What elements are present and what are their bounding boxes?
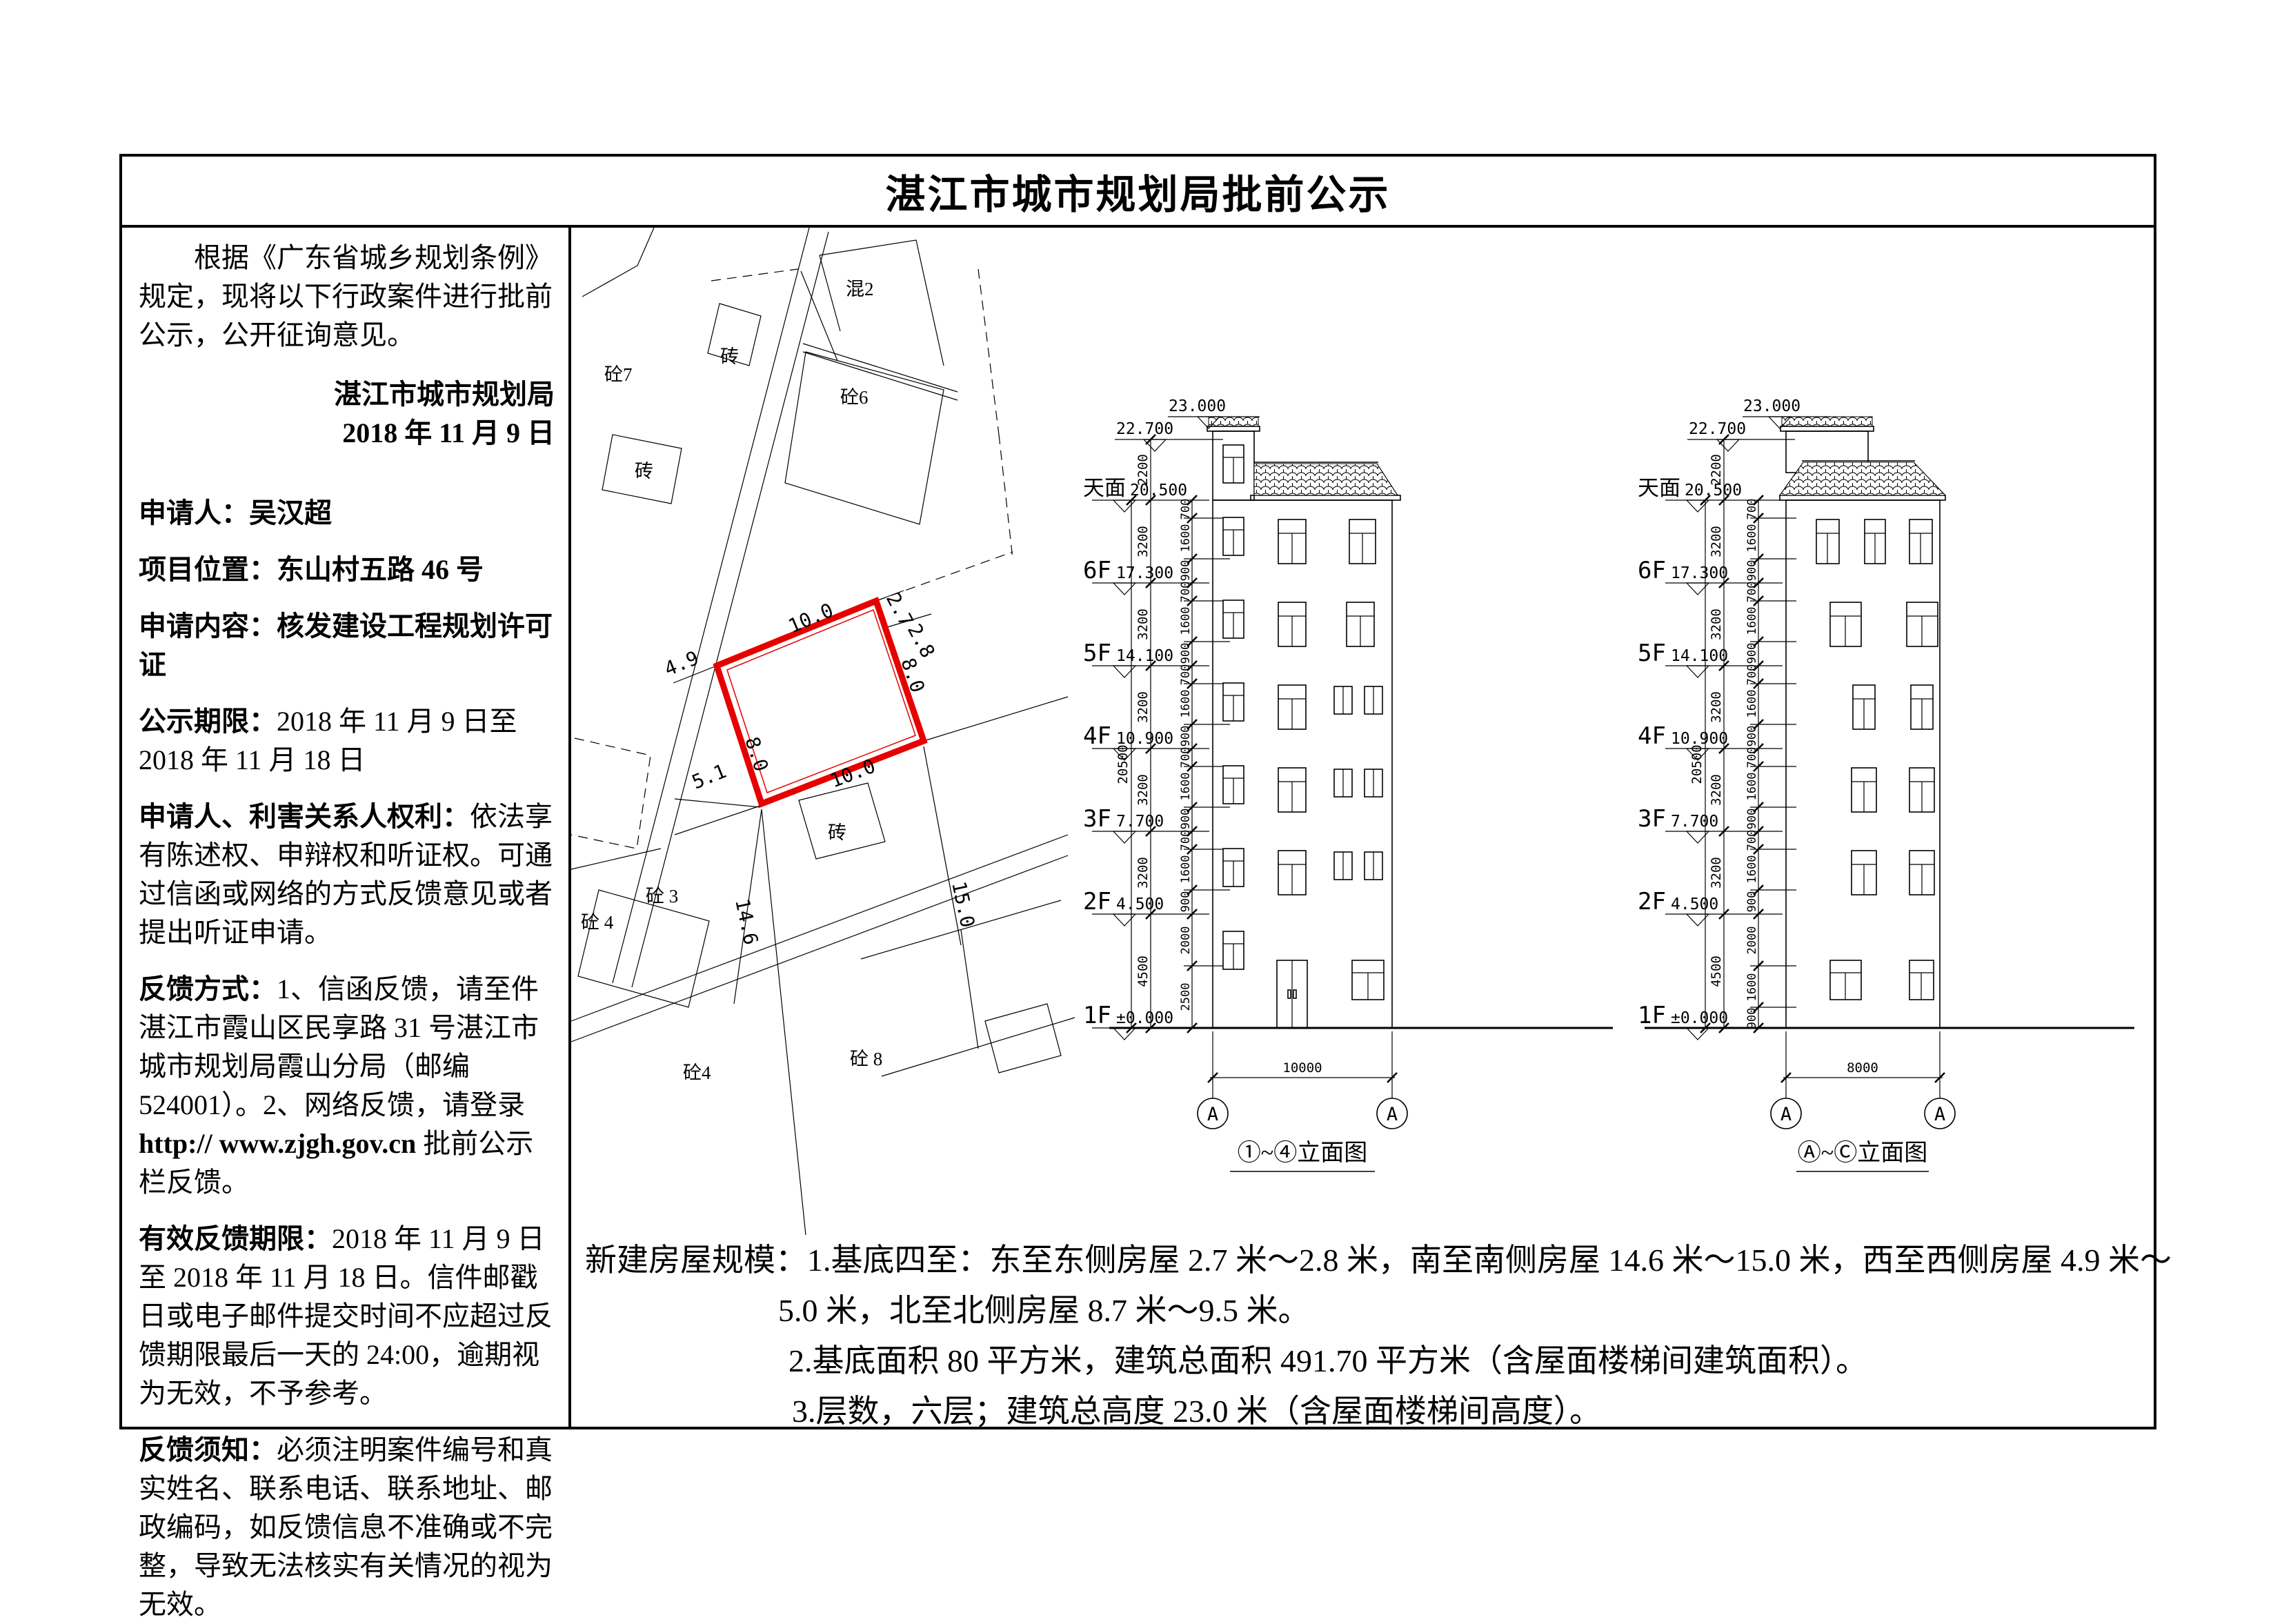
floor-dim: 3200: [1709, 774, 1724, 806]
level-name: 2F: [1083, 888, 1111, 915]
period-label: 公示期限：: [139, 706, 277, 737]
roof-small-mark: 23.000: [1743, 397, 1800, 415]
windows-left-elevation: [1223, 445, 1384, 1028]
drawing-area: 10.0 10.0 8.0 8.0 2.7 2.8 4.9 5.1 14.6 1…: [571, 228, 2154, 1427]
window-dim: 900: [1745, 726, 1759, 747]
document-frame: 湛江市城市规划局批前公示 根据《广东省城乡规划条例》规定，现将以下行政案件进行批…: [119, 154, 2156, 1429]
window-dim: 900: [1179, 809, 1193, 830]
content-row: 申请内容：核发建设工程规划许可证: [139, 607, 555, 684]
window-dim: 1600: [1179, 855, 1193, 884]
window-dim: 900: [1179, 560, 1193, 582]
site-plan-drawing: 10.0 10.0 8.0 8.0 2.7 2.8 4.9 5.1 14.6 1…: [571, 228, 1082, 1235]
setback-south-2: 15.0: [947, 880, 979, 930]
setback-west-1: 4.9: [661, 646, 702, 681]
window-dim: 700: [1179, 664, 1193, 686]
org-date: 2018 年 11 月 9 日: [342, 417, 555, 448]
feedback-url: http:// www.zjgh.gov.cn: [139, 1128, 416, 1159]
note-line-2: 5.0 米，北至北侧房屋 8.7 米～9.5 米。: [778, 1285, 2154, 1336]
elevation-caption: Ⓐ~Ⓒ立面图: [1798, 1140, 1927, 1166]
window-dim: 700: [1179, 747, 1193, 769]
window-dimension-chain-left: 700 1600 900 700 1600 900 700 1600 900 7…: [1179, 495, 1230, 1033]
width-dim-value: 10000: [1282, 1060, 1322, 1076]
level-name: 6F: [1083, 557, 1111, 584]
roof-small-mark: 23.000: [1169, 397, 1226, 415]
floor-dim: 3200: [1709, 857, 1724, 889]
public-notice-page: { "title": "湛江市城市规划局批前公示", "sidebar": { …: [0, 0, 2282, 1614]
floor-dim: 3200: [1709, 691, 1724, 723]
level-name: 4F: [1638, 722, 1666, 750]
window-dim: 1600: [1179, 773, 1193, 801]
org-name: 湛江市城市规划局: [334, 379, 555, 410]
level-name: 5F: [1638, 640, 1666, 667]
feedback-label: 反馈方式：: [139, 973, 277, 1004]
window-dim: 700: [1179, 499, 1193, 520]
parcel-label: 砼 4: [581, 912, 614, 933]
level-elevation: 14.100: [1116, 647, 1173, 665]
window-dim: 700: [1745, 499, 1759, 520]
window-dim: 900: [1745, 560, 1759, 582]
level-name: 天面: [1083, 476, 1126, 500]
notice-sidebar: 根据《广东省城乡规划条例》规定，现将以下行政案件进行批前公示，公开征询意见。 湛…: [122, 228, 571, 1427]
location-row: 项目位置：东山村五路 46 号: [139, 551, 555, 589]
floor-dim: 3200: [1135, 857, 1151, 889]
note-line-4: 3.层数，六层；建筑总高度 23.0 米（含屋面楼梯间高度）。: [792, 1386, 2154, 1436]
caption-left-elevation: ①~④立面图: [1230, 1140, 1375, 1171]
floor-dim: 3200: [1135, 526, 1151, 557]
width-dimension-right-elevation: 8000 A A: [1771, 1031, 1955, 1129]
window-dim: 1600: [1179, 607, 1193, 635]
floor-dim: 3200: [1135, 774, 1151, 806]
window-dimension-chain-right: 700 1600 900 700 1600 900 700 1600 900 7…: [1745, 495, 1796, 1033]
level-name: 6F: [1638, 557, 1666, 584]
rights-label: 申请人、利害关系人权利：: [139, 801, 470, 832]
window-dim: 2000: [1745, 927, 1759, 955]
floor-dim: 2200: [1135, 454, 1151, 486]
axis-bubble-label: A: [1934, 1104, 1945, 1125]
parcel-label: 砼 8: [850, 1049, 882, 1069]
valid-row: 有效反馈期限：2018 年 11 月 9 日至 2018 年 11 月 18 日…: [139, 1220, 555, 1413]
intro-paragraph: 根据《广东省城乡规划条例》规定，现将以下行政案件进行批前公示，公开征询意见。: [139, 239, 555, 355]
overall-dim: 20500: [1115, 744, 1131, 784]
applicant-label: 申请人：: [139, 497, 249, 528]
floor-dim: 3200: [1709, 608, 1724, 640]
caption-right-elevation: Ⓐ~Ⓒ立面图: [1796, 1140, 1929, 1171]
level-elevation: 17.300: [1116, 564, 1173, 582]
window-dim: 900: [1179, 643, 1193, 664]
width-dim-value: 8000: [1847, 1060, 1878, 1076]
axis-bubble-label: A: [1207, 1104, 1218, 1125]
floor-dim: 4500: [1709, 955, 1724, 987]
level-elevation: 7.700: [1116, 813, 1164, 831]
level-name: 2F: [1638, 888, 1666, 915]
level-name: 3F: [1638, 805, 1666, 833]
note-line-1: 新建房屋规模：1.基底四至：东至东侧房屋 2.7 米～2.8 米，南至南侧房屋 …: [585, 1235, 2154, 1285]
notice-row: 反馈须知：必须注明案件编号和真实姓名、联系电话、联系地址、邮政编码，如反馈信息不…: [139, 1431, 555, 1624]
level-name: 1F: [1638, 1002, 1666, 1029]
title-bar: 湛江市城市规划局批前公示: [122, 157, 2154, 228]
roof-main-mark: 22.700: [1689, 420, 1746, 438]
period-row: 公示期限：2018 年 11 月 9 日至 2018 年 11 月 18 日: [139, 702, 555, 780]
window-dim: 1600: [1745, 607, 1759, 635]
level-name: 天面: [1638, 476, 1680, 500]
elevation-1-4-drawing: 天面 20.500 6F 17.300 5F 14.100 4F 10.900 …: [1082, 228, 1624, 1235]
window-dim: 700: [1745, 747, 1759, 769]
overall-dim: 20500: [1689, 744, 1705, 784]
setback-south-1: 14.6: [731, 897, 762, 947]
window-dim: 1600: [1745, 973, 1759, 1002]
window-dim: 900: [1745, 1008, 1759, 1029]
org-block: 湛江市城市规划局 2018 年 11 月 9 日: [139, 375, 555, 453]
parcel-label: 砼 3: [646, 886, 678, 907]
window-dim: 1600: [1745, 524, 1759, 553]
parcel-label: 砖: [720, 346, 739, 367]
window-dim: 2500: [1179, 983, 1193, 1011]
window-dim: 700: [1179, 830, 1193, 851]
elevation-caption: ①~④立面图: [1238, 1140, 1367, 1166]
roof-main-mark: 22.700: [1116, 420, 1173, 438]
window-dim: 700: [1745, 664, 1759, 686]
parcel-label: 砖: [635, 461, 653, 482]
parcel-label: 砖: [828, 822, 846, 843]
page-title: 湛江市城市规划局批前公示: [885, 162, 1390, 220]
window-dim: 2000: [1179, 927, 1193, 955]
note-line-3: 2.基底面积 80 平方米，建筑总面积 491.70 平方米（含屋面楼梯间建筑面…: [788, 1336, 2154, 1386]
setback-east-2: 2.8: [903, 620, 940, 662]
window-dim: 700: [1179, 582, 1193, 603]
parcel-label: 砼7: [604, 364, 633, 385]
rights-row: 申请人、利害关系人权利：依法享有陈述权、申辩权和听证权。可通过信函或网络的方式反…: [139, 798, 555, 952]
window-dim: 700: [1745, 582, 1759, 603]
valid-label: 有效反馈期限：: [139, 1223, 332, 1254]
feedback-row: 反馈方式：1、信函反馈，请至件湛江市霞山区民享路 31 号湛江市城市规划局霞山分…: [139, 970, 555, 1202]
parcel-label: 砼4: [683, 1062, 711, 1083]
floor-dim: 2200: [1709, 454, 1724, 486]
axis-bubble-label: A: [1387, 1104, 1398, 1125]
location-value: 东山村五路 46 号: [277, 554, 484, 585]
elevation-a-c-drawing: 天面 20.500 6F 17.300 5F 14.100 4F 10.900 …: [1624, 228, 2159, 1235]
level-name: 4F: [1083, 722, 1111, 750]
level-elevation: ±0.000: [1671, 1009, 1728, 1027]
axis-bubble-label: A: [1780, 1104, 1792, 1125]
level-elevation: ±0.000: [1116, 1009, 1173, 1027]
level-elevation: 17.300: [1671, 564, 1728, 582]
window-dim: 1600: [1745, 855, 1759, 884]
setback-west-2: 5.1: [688, 760, 729, 794]
building-scale-notes: 新建房屋规模：1.基底四至：东至东侧房屋 2.7 米～2.8 米，南至南侧房屋 …: [571, 1235, 2154, 1436]
parcel-label: 砼6: [840, 387, 869, 408]
windows-right-elevation: [1816, 519, 1938, 1000]
window-dim: 900: [1745, 891, 1759, 913]
width-dimension-left-elevation: 10000 A A: [1198, 1031, 1407, 1129]
location-label: 项目位置：: [139, 554, 277, 585]
level-elevation: 4.500: [1671, 895, 1718, 913]
level-elevation: 14.100: [1671, 647, 1728, 665]
level-name: 3F: [1083, 805, 1111, 833]
window-dim: 900: [1745, 809, 1759, 830]
notice-label: 反馈须知：: [139, 1434, 277, 1465]
floor-dim: 3200: [1135, 608, 1151, 640]
applicant-value: 吴汉超: [249, 497, 332, 528]
floor-dim: 4500: [1135, 955, 1151, 987]
window-dim: 1600: [1179, 690, 1193, 718]
floor-dim: 3200: [1135, 691, 1151, 723]
level-elevation: 4.500: [1116, 895, 1164, 913]
level-markers-right-elevation: 天面 20.500 6F 17.300 5F 14.100 4F 10.900 …: [1638, 476, 1783, 1040]
parcel-label: 混2: [846, 279, 874, 299]
window-dim: 900: [1179, 891, 1193, 913]
level-name: 5F: [1083, 640, 1111, 667]
content-label: 申请内容：: [139, 611, 277, 642]
applicant-row: 申请人：吴汉超: [139, 494, 555, 533]
window-dim: 1600: [1745, 773, 1759, 801]
window-dim: 1600: [1745, 690, 1759, 718]
window-dim: 900: [1179, 726, 1193, 747]
floor-dim: 3200: [1709, 526, 1724, 557]
window-dim: 900: [1745, 643, 1759, 664]
window-dim: 700: [1745, 830, 1759, 851]
level-name: 1F: [1083, 1002, 1111, 1029]
level-elevation: 7.700: [1671, 813, 1718, 831]
window-dim: 1600: [1179, 524, 1193, 553]
